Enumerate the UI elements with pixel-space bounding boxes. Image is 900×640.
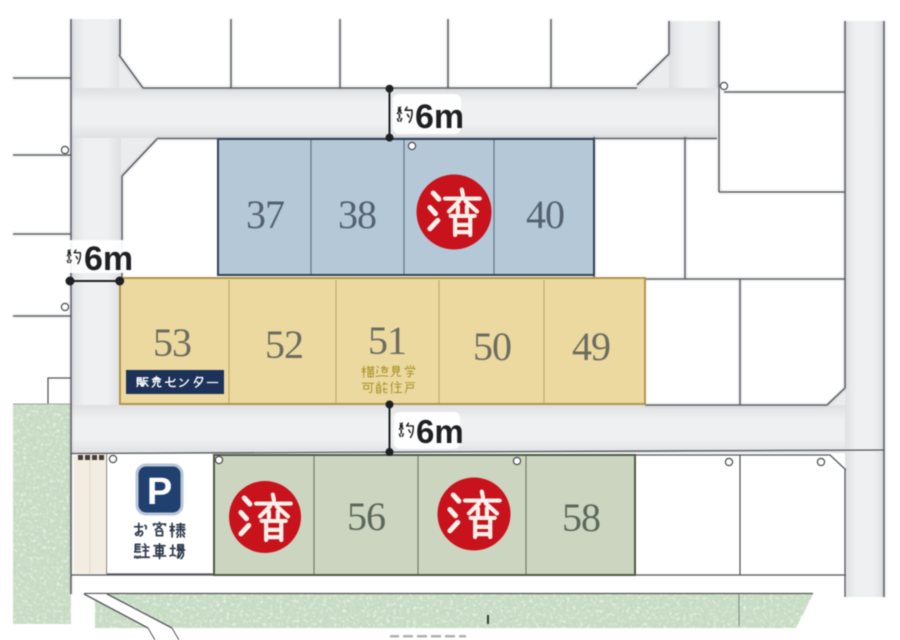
svg-text:50: 50 bbox=[473, 324, 511, 369]
svg-text:53: 53 bbox=[153, 320, 191, 365]
svg-text:P: P bbox=[147, 471, 172, 513]
svg-text:6m: 6m bbox=[416, 413, 464, 450]
svg-text:51: 51 bbox=[368, 318, 406, 363]
svg-text:40: 40 bbox=[526, 192, 564, 237]
svg-text:38: 38 bbox=[338, 192, 376, 237]
svg-text:58: 58 bbox=[562, 495, 600, 540]
svg-text:49: 49 bbox=[572, 324, 610, 369]
svg-text:52: 52 bbox=[265, 322, 303, 367]
svg-text:37: 37 bbox=[246, 192, 284, 237]
svg-text:56: 56 bbox=[347, 494, 385, 539]
svg-text:6m: 6m bbox=[415, 98, 464, 136]
svg-text:6m: 6m bbox=[84, 240, 133, 278]
